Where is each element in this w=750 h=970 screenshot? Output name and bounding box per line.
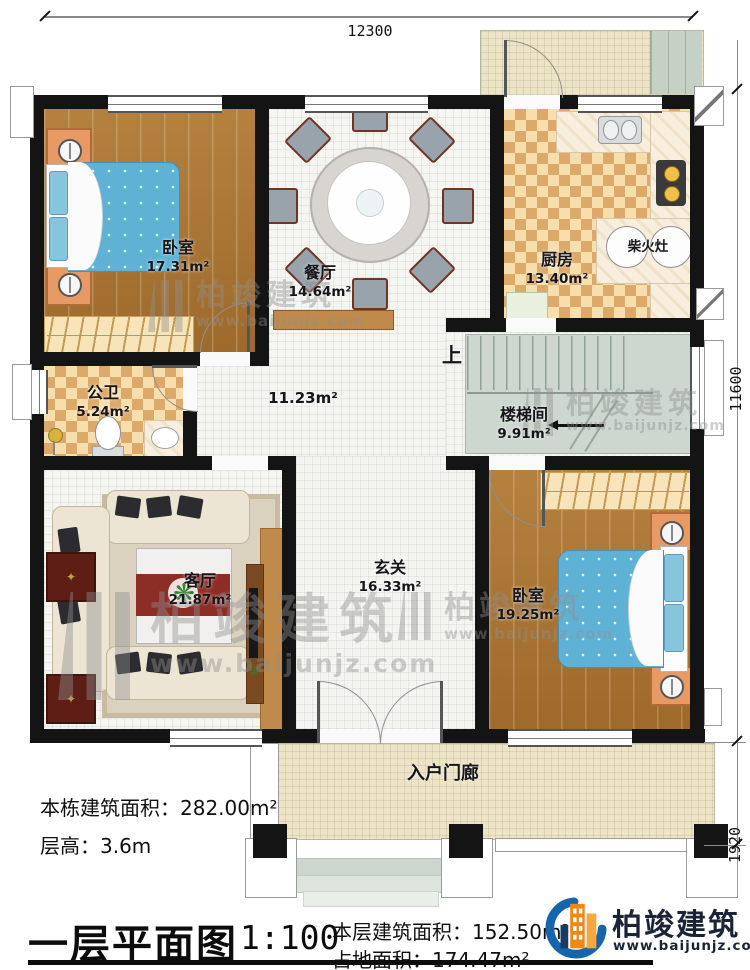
shower-stem [53, 441, 55, 455]
floor-plan: ✦ ✦ ❋ ❊ [0, 0, 750, 970]
dimension-line-top [45, 16, 693, 18]
stair-treads [467, 336, 625, 390]
dining-chair [442, 188, 474, 224]
label-living: 客厅 21.87m² [150, 571, 250, 609]
door-opening-kitchen [506, 318, 556, 332]
wall-bedroom1-dining [255, 109, 269, 352]
sofa-pillow [57, 527, 80, 555]
window-sill-box [12, 364, 32, 420]
window-sill-box [10, 86, 34, 138]
label-stairs-up: 上 [438, 342, 466, 368]
sofa-pillow [146, 496, 172, 519]
burner-icon [664, 166, 680, 182]
note-building-area: 本栋建筑面积：282.00m² [40, 792, 277, 821]
pillow [664, 604, 684, 652]
end-table: ✦ [46, 552, 96, 602]
door-opening-living [212, 456, 268, 470]
label-bedroom2: 卧室 19.25m² [478, 586, 578, 624]
label-hall-area: 11.23m² [253, 389, 353, 409]
sofa-pillow [115, 651, 142, 674]
entrance-door-leaf-left [317, 681, 320, 743]
door-leaf-bathroom [152, 365, 197, 368]
dimension-width: 12300 [325, 22, 415, 40]
label-foyer: 玄关 16.33m² [340, 558, 440, 596]
label-dining: 餐厅 14.64m² [270, 263, 370, 301]
small-plant-icon: ❊ [245, 662, 263, 680]
dimension-height-main: 11600 [727, 361, 745, 417]
burner-icon [664, 186, 680, 202]
window [170, 729, 262, 747]
sideboard [273, 310, 394, 330]
sofa-pillow [115, 495, 142, 518]
dimension-extension [704, 742, 746, 743]
flue-box [696, 288, 724, 320]
entry-step-3 [303, 891, 439, 907]
entry-porch-floor [277, 743, 715, 840]
label-bathroom: 公卫 5.24m² [53, 383, 153, 421]
tv-icon [249, 588, 258, 658]
porch-pillar-center [449, 824, 483, 858]
window [508, 729, 632, 747]
back-porch-steps [650, 31, 702, 94]
note-floor-height: 层高：3.6m [40, 830, 151, 859]
end-table: ✦ [46, 674, 96, 724]
stair-handrail [467, 392, 653, 394]
window [108, 95, 222, 113]
dining-chair [266, 188, 298, 224]
wardrobe [540, 472, 692, 510]
door-opening-bedroom1 [200, 352, 250, 366]
window [30, 370, 48, 414]
sink-basin [603, 120, 619, 140]
nightstand [650, 666, 692, 706]
sink-basin [621, 120, 637, 140]
window-sill-box [704, 688, 722, 726]
bathroom-sink [151, 427, 179, 449]
lazy-susan [356, 189, 384, 217]
flue-box [694, 86, 724, 126]
label-bedroom1: 卧室 17.31m² [128, 238, 228, 276]
label-firewood-stove: 柴火灶 [600, 239, 696, 257]
wardrobe [44, 316, 194, 354]
note-floor-area: 本层建筑面积：152.50m² [332, 916, 569, 945]
door-leaf-backporch [504, 40, 507, 97]
wall-exterior-left [30, 95, 44, 743]
door-leaf-bedroom2 [542, 470, 545, 526]
wall-kitchen-bottom [446, 318, 704, 332]
porch-edge-band [495, 838, 689, 852]
door-leaf-bedroom1 [247, 302, 250, 352]
door-opening-bedroom2 [489, 456, 545, 470]
entrance-door-leaf-right [440, 681, 443, 743]
pillow [49, 217, 68, 261]
dimension-height-porch: 1920 [726, 817, 744, 873]
sofa-pillow [146, 652, 172, 675]
brand-url: www.baijunjz.com [613, 938, 750, 954]
label-kitchen: 厨房 13.40m² [507, 250, 607, 288]
sofa-pillow [177, 651, 204, 675]
note-land-area: 占地面积：174.47m² [332, 944, 529, 970]
porch-pillar-left [253, 824, 287, 858]
shower-head-icon [48, 428, 63, 443]
wall-dining-kitchen [490, 109, 504, 332]
drawing-scale: 1:100 [240, 918, 339, 957]
window-sill-box [704, 340, 724, 436]
pillow [49, 171, 68, 215]
room-hall-floor [197, 366, 460, 470]
window [578, 95, 662, 113]
pillow [664, 554, 684, 602]
brand-logo-icon [545, 896, 607, 960]
label-entry-porch: 入户门廊 [383, 762, 503, 785]
sofa-pillow [176, 495, 203, 519]
porch-pillar-right [694, 824, 728, 858]
window [305, 95, 428, 113]
label-stairwell: 楼梯间 9.91m² [474, 405, 574, 443]
wall-living-foyer [282, 456, 296, 743]
